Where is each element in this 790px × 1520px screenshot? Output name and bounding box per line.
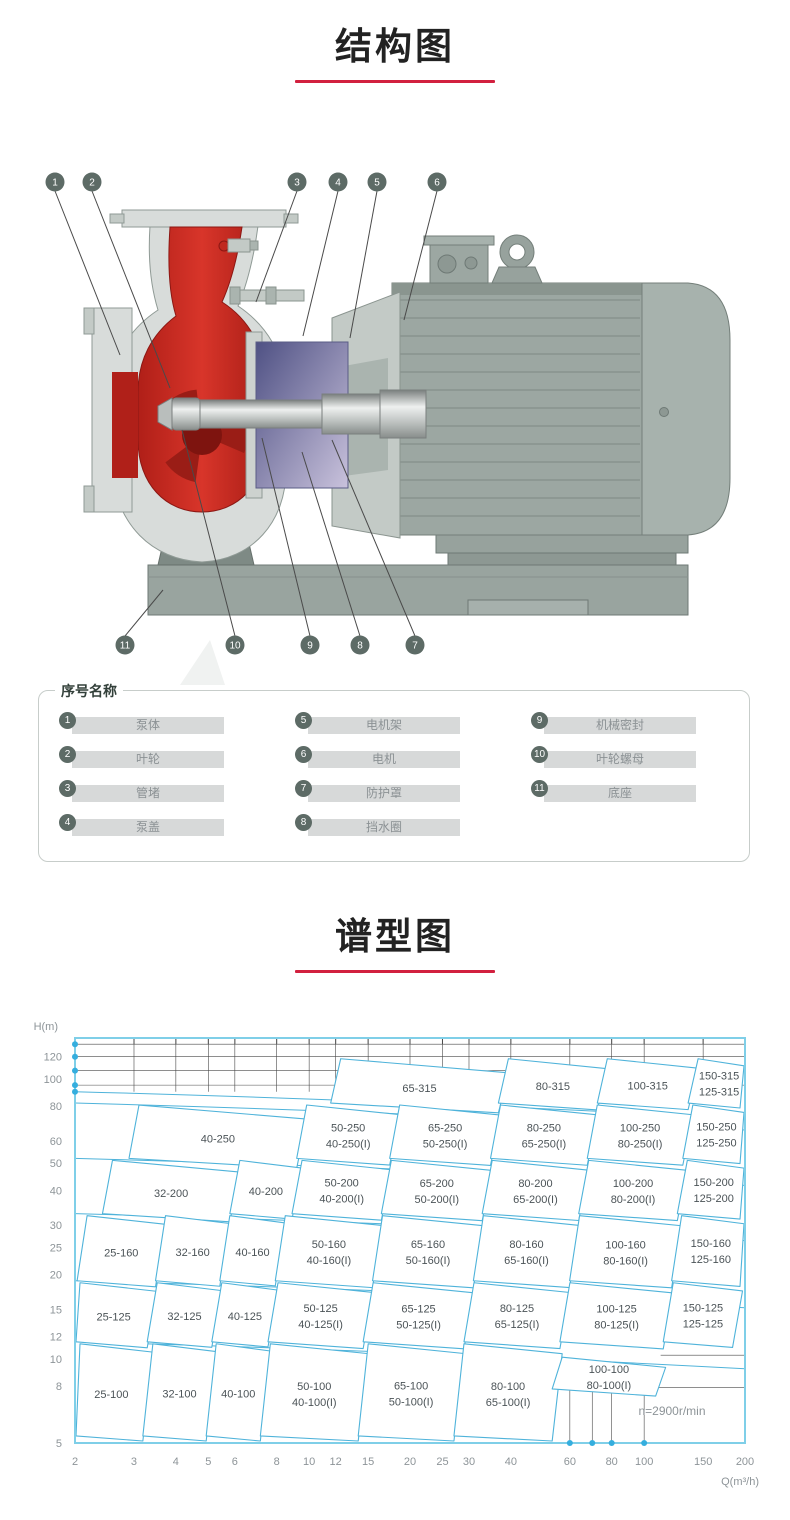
callout-number: 3 xyxy=(294,178,300,189)
pump-model-label: 40-250 xyxy=(201,1134,235,1146)
spectrum-title-underline xyxy=(295,970,495,973)
callout-4: 4 xyxy=(329,173,348,192)
x-tick-label: 3 xyxy=(131,1456,137,1468)
pump-model-label: 40-200(I) xyxy=(319,1194,364,1206)
legend-item-label: 叶轮 xyxy=(72,751,224,768)
pump-model-region: 150-125125-125 xyxy=(663,1283,742,1348)
pump-model-label: 80-250(I) xyxy=(618,1139,663,1151)
pump-model-label: 125-315 xyxy=(699,1086,739,1098)
legend-item: 7防护罩 xyxy=(295,785,531,803)
motor xyxy=(392,235,730,535)
pump-model-label: 150-250 xyxy=(696,1121,736,1133)
pump-model-label: 50-200 xyxy=(325,1178,359,1190)
y-axis-label: H(m) xyxy=(34,1021,58,1033)
pump-model-label: 80-160 xyxy=(509,1239,543,1251)
callout-number: 10 xyxy=(229,641,241,652)
y-tick-label: 80 xyxy=(50,1101,62,1113)
legend-columns: 1泵体2叶轮3管堵4泵盖5电机架6电机7防护罩8挡水圈9机械密封10叶轮螺母11… xyxy=(39,691,749,853)
pump-model-region: 32-200 xyxy=(102,1160,239,1221)
pump-model-label: 80-125(I) xyxy=(594,1319,639,1331)
pump-model-region: 150-160125-160 xyxy=(672,1216,744,1287)
pump-model-label: 40-200 xyxy=(249,1186,283,1198)
pump-model-label: 65-160 xyxy=(411,1239,445,1251)
y-tick-label: 40 xyxy=(50,1185,62,1197)
legend-item: 4泵盖 xyxy=(59,819,295,837)
pump-model-label: 65-100(I) xyxy=(486,1397,531,1409)
pump-model-region: 100-25080-250(I) xyxy=(587,1105,693,1165)
pump-model-label: 125-125 xyxy=(683,1318,723,1330)
legend-item-number: 10 xyxy=(531,746,548,763)
callout-leader-line xyxy=(303,191,338,336)
pump-model-label: 100-125 xyxy=(596,1303,636,1315)
pump-model-label: 50-100 xyxy=(297,1381,331,1393)
pump-model-label: 65-125(I) xyxy=(495,1319,540,1331)
legend-item-label: 电机 xyxy=(308,751,460,768)
legend-item: 2叶轮 xyxy=(59,751,295,769)
pump-model-label: 150-125 xyxy=(683,1302,723,1314)
pump-model-label: 100-200 xyxy=(613,1178,653,1190)
pump-model-region: 80-12565-125(I) xyxy=(464,1283,570,1349)
legend-item-label: 叶轮螺母 xyxy=(544,751,696,768)
pump-model-region: 40-100 xyxy=(206,1344,270,1441)
y-tick-label: 15 xyxy=(50,1304,62,1316)
spectrum-section-title: 谱型图 xyxy=(0,906,790,973)
motor-screw xyxy=(660,408,669,417)
pump-model-label: 32-125 xyxy=(167,1311,201,1323)
legend-item: 9机械密封 xyxy=(531,717,731,735)
pump-model-region: 150-200125-200 xyxy=(677,1160,744,1219)
y-tick-label: 20 xyxy=(50,1270,62,1282)
pump-model-label: 32-100 xyxy=(162,1389,196,1401)
legend-item-label: 电机架 xyxy=(308,717,460,734)
discharge-flange xyxy=(122,210,286,227)
pump-model-label: 32-200 xyxy=(154,1188,188,1200)
pump-model-label: 100-315 xyxy=(628,1081,668,1093)
callout-number: 8 xyxy=(357,641,363,652)
pump-model-label: 150-160 xyxy=(691,1238,731,1250)
structure-title-text: 结构图 xyxy=(0,16,790,70)
pump-model-region: 100-315 xyxy=(597,1059,698,1110)
callout-leader-line xyxy=(256,191,297,302)
legend-item-number: 4 xyxy=(59,814,76,831)
pump-model-label: 50-250(I) xyxy=(423,1139,468,1151)
pump-model-region: 65-20050-200(I) xyxy=(381,1160,492,1220)
x-tick-label: 40 xyxy=(505,1456,517,1468)
pump-model-label: 32-160 xyxy=(176,1247,210,1259)
pump-model-label: 65-160(I) xyxy=(504,1255,549,1267)
pump-model-label: 50-125(I) xyxy=(396,1319,441,1331)
pump-model-region: 40-200 xyxy=(230,1160,302,1219)
callout-number: 6 xyxy=(434,178,440,189)
legend-item: 10叶轮螺母 xyxy=(531,751,731,769)
legend-item-number: 1 xyxy=(59,712,76,729)
legend-item-number: 5 xyxy=(295,712,312,729)
pump-model-region: 80-16065-160(I) xyxy=(473,1216,579,1288)
pump-model-label: 65-125 xyxy=(401,1303,435,1315)
pump-model-label: 65-315 xyxy=(402,1083,436,1095)
legend-item-label: 挡水圈 xyxy=(308,819,460,836)
pump-model-label: 25-100 xyxy=(94,1389,128,1401)
x-tick-label: 30 xyxy=(463,1456,475,1468)
legend-item-label: 管堵 xyxy=(72,785,224,802)
legend-item-number: 8 xyxy=(295,814,312,831)
pump-model-region: 65-25050-250(I) xyxy=(390,1105,501,1165)
callout-9: 9 xyxy=(301,636,320,655)
pump-model-region: 40-160 xyxy=(220,1216,285,1286)
legend-item: 5电机架 xyxy=(295,717,531,735)
pump-model-label: 80-100 xyxy=(491,1381,525,1393)
pump-model-region: 40-250 xyxy=(129,1105,307,1168)
pump-model-label: 50-160 xyxy=(312,1239,346,1251)
x-tick-label: 8 xyxy=(274,1456,280,1468)
x-tick-label: 5 xyxy=(205,1456,211,1468)
pump-model-region: 65-10050-100(I) xyxy=(358,1344,464,1441)
y-tick-label: 10 xyxy=(50,1354,62,1366)
base-plate xyxy=(148,565,688,615)
pump-model-region: 150-250125-250 xyxy=(683,1105,744,1164)
pump-model-region: 50-16040-160(I) xyxy=(275,1216,382,1288)
pump-model-region: 32-125 xyxy=(147,1283,222,1348)
legend-column: 5电机架6电机7防护罩8挡水圈 xyxy=(295,717,531,853)
legend-item-label: 泵盖 xyxy=(72,819,224,836)
structure-section-title: 结构图 xyxy=(0,16,790,83)
pump-model-label: 125-250 xyxy=(696,1137,736,1149)
pump-model-region: 65-16050-160(I) xyxy=(373,1216,484,1288)
callout-number: 5 xyxy=(374,178,380,189)
callout-11: 11 xyxy=(116,636,135,655)
pump-model-label: 65-250(I) xyxy=(522,1139,567,1151)
pump-model-region: 25-125 xyxy=(76,1283,157,1348)
pump-model-label: 40-100(I) xyxy=(292,1397,337,1409)
y-tick-label: 50 xyxy=(50,1158,62,1170)
speed-annotation: n=2900r/min xyxy=(638,1404,705,1418)
x-tick-label: 10 xyxy=(303,1456,315,1468)
y-tick-label: 100 xyxy=(44,1074,62,1086)
pump-model-region: 150-315125-315 xyxy=(688,1059,744,1108)
x-tick-label: 25 xyxy=(436,1456,448,1468)
y-tick-label: 5 xyxy=(56,1438,62,1450)
pump-structure-diagram: 1234567891011 xyxy=(0,140,790,685)
x-tick-label: 20 xyxy=(404,1456,416,1468)
callout-number: 9 xyxy=(307,641,313,652)
x-tick-label: 6 xyxy=(232,1456,238,1468)
x-tick-label: 100 xyxy=(635,1456,653,1468)
callout-number: 1 xyxy=(52,178,58,189)
pump-model-region: 32-160 xyxy=(156,1216,230,1287)
lifting-eye xyxy=(492,235,542,283)
pump-model-label: 80-200 xyxy=(518,1178,552,1190)
y-tick-label: 60 xyxy=(50,1136,62,1148)
callout-2: 2 xyxy=(83,173,102,192)
x-tick-label: 80 xyxy=(606,1456,618,1468)
x-axis-label: Q(m³/h) xyxy=(721,1476,759,1488)
y-tick-label: 25 xyxy=(50,1242,62,1254)
pump-model-region: 50-20040-200(I) xyxy=(292,1160,391,1220)
pump-model-label: 80-250 xyxy=(527,1123,561,1135)
callout-7: 7 xyxy=(406,636,425,655)
pump-model-region: 80-20065-200(I) xyxy=(482,1160,589,1220)
callout-number: 2 xyxy=(89,178,95,189)
legend-item-label: 防护罩 xyxy=(308,785,460,802)
x-tick-label: 15 xyxy=(362,1456,374,1468)
impeller-nut xyxy=(172,398,200,430)
callout-number: 11 xyxy=(120,641,131,652)
y-tick-label: 120 xyxy=(44,1052,62,1064)
pump-model-label: 150-200 xyxy=(693,1177,733,1189)
pump-model-region: 40-125 xyxy=(212,1283,278,1347)
pump-model-region: 100-16080-160(I) xyxy=(570,1216,682,1288)
legend-item: 3管堵 xyxy=(59,785,295,803)
pump-model-label: 80-200(I) xyxy=(611,1194,656,1206)
y-tick-label: 30 xyxy=(50,1220,62,1232)
pump-model-label: 80-160(I) xyxy=(603,1255,648,1267)
x-tick-label: 150 xyxy=(694,1456,712,1468)
pump-model-label: 40-160(I) xyxy=(307,1255,352,1267)
callout-1: 1 xyxy=(46,173,65,192)
legend-item: 6电机 xyxy=(295,751,531,769)
callout-5: 5 xyxy=(368,173,387,192)
pump-model-region: 100-10080-100(I) xyxy=(552,1357,665,1396)
pump-model-region: 100-12580-125(I) xyxy=(560,1283,673,1349)
pump-model-region: 65-315 xyxy=(331,1059,509,1113)
pump-model-label: 40-125(I) xyxy=(298,1319,343,1331)
pump-model-label: 50-160(I) xyxy=(406,1255,451,1267)
callout-number: 7 xyxy=(412,641,418,652)
x-tick-label: 12 xyxy=(330,1456,342,1468)
pump-model-region: 50-25040-250(I) xyxy=(297,1105,400,1165)
legend-column: 1泵体2叶轮3管堵4泵盖 xyxy=(59,717,295,853)
pump-model-label: 65-200 xyxy=(420,1178,454,1190)
pump-model-label: 40-160 xyxy=(235,1247,269,1259)
pump-model-label: 50-125 xyxy=(303,1303,337,1315)
legend-item-number: 6 xyxy=(295,746,312,763)
legend-column: 9机械密封10叶轮螺母11底座 xyxy=(531,717,731,853)
pump-model-region: 50-10040-100(I) xyxy=(260,1344,368,1441)
y-tick-label: 8 xyxy=(56,1381,62,1393)
callout-8: 8 xyxy=(351,636,370,655)
pump-model-label: 65-200(I) xyxy=(513,1194,558,1206)
pump-model-region: 80-10065-100(I) xyxy=(454,1344,562,1441)
pump-model-label: 40-125 xyxy=(228,1311,262,1323)
x-tick-label: 2 xyxy=(72,1456,78,1468)
callout-3: 3 xyxy=(288,173,307,192)
pump-model-region: 65-12550-125(I) xyxy=(363,1283,474,1349)
legend-item-label: 机械密封 xyxy=(544,717,696,734)
callout-number: 4 xyxy=(335,178,341,189)
legend-item: 11底座 xyxy=(531,785,731,803)
legend-item-number: 9 xyxy=(531,712,548,729)
pump-model-label: 150-315 xyxy=(699,1070,739,1082)
parts-legend: 序号名称 1泵体2叶轮3管堵4泵盖5电机架6电机7防护罩8挡水圈9机械密封10叶… xyxy=(38,690,750,862)
legend-item-number: 11 xyxy=(531,780,548,797)
callout-6: 6 xyxy=(428,173,447,192)
pump-model-label: 25-125 xyxy=(96,1312,130,1324)
pump-model-label: 100-250 xyxy=(620,1123,660,1135)
pump-model-label: 80-315 xyxy=(536,1081,570,1093)
legend-item-label: 泵体 xyxy=(72,717,224,734)
pump-model-label: 50-100(I) xyxy=(389,1397,434,1409)
pump-model-label: 40-250(I) xyxy=(326,1138,371,1150)
pump-model-tiles: 65-31580-315100-315150-315125-31540-2505… xyxy=(76,1059,744,1441)
pump-model-region: 100-20080-200(I) xyxy=(579,1160,688,1220)
x-tick-label: 200 xyxy=(736,1456,754,1468)
pump-model-label: 65-250 xyxy=(428,1123,462,1135)
pump-model-label: 100-160 xyxy=(605,1239,645,1251)
pump-model-label: 80-125 xyxy=(500,1303,534,1315)
legend-item-number: 7 xyxy=(295,780,312,797)
pump-model-label: 65-100 xyxy=(394,1381,428,1393)
pump-model-label: 50-200(I) xyxy=(414,1194,459,1206)
pump-model-region: 80-25065-250(I) xyxy=(491,1105,598,1165)
pump-model-region: 32-100 xyxy=(143,1344,216,1441)
legend-item-number: 3 xyxy=(59,780,76,797)
pump-selection-chart: 65-31580-315100-315150-315125-31540-2505… xyxy=(0,1008,790,1508)
pump-model-label: 80-100(I) xyxy=(587,1380,632,1392)
legend-item-label: 底座 xyxy=(544,785,696,802)
x-tick-label: 4 xyxy=(173,1456,179,1468)
legend-title: 序号名称 xyxy=(55,681,123,701)
y-tick-label: 12 xyxy=(50,1332,62,1344)
pump-model-label: 125-200 xyxy=(693,1193,733,1205)
pump-model-label: 25-160 xyxy=(104,1248,138,1260)
pump-model-region: 80-315 xyxy=(498,1059,607,1110)
pump-model-label: 100-100 xyxy=(589,1364,629,1376)
suction-flange xyxy=(84,308,138,512)
legend-item-number: 2 xyxy=(59,746,76,763)
structure-title-underline xyxy=(295,80,495,83)
pump-model-label: 50-250 xyxy=(331,1122,365,1134)
legend-item: 8挡水圈 xyxy=(295,819,531,837)
legend-item: 1泵体 xyxy=(59,717,295,735)
pump-model-region: 50-12540-125(I) xyxy=(268,1283,373,1349)
callout-10: 10 xyxy=(226,636,245,655)
pump-model-region: 25-100 xyxy=(76,1344,153,1441)
page: 结构图 xyxy=(0,0,790,1520)
x-tick-label: 60 xyxy=(564,1456,576,1468)
pump-model-label: 125-160 xyxy=(691,1254,731,1266)
pump-model-region: 25-160 xyxy=(77,1216,165,1287)
spectrum-title-text: 谱型图 xyxy=(0,906,790,960)
pump-model-label: 40-100 xyxy=(221,1388,255,1400)
motor-end-cap xyxy=(642,283,730,535)
terminal-box xyxy=(424,236,494,283)
